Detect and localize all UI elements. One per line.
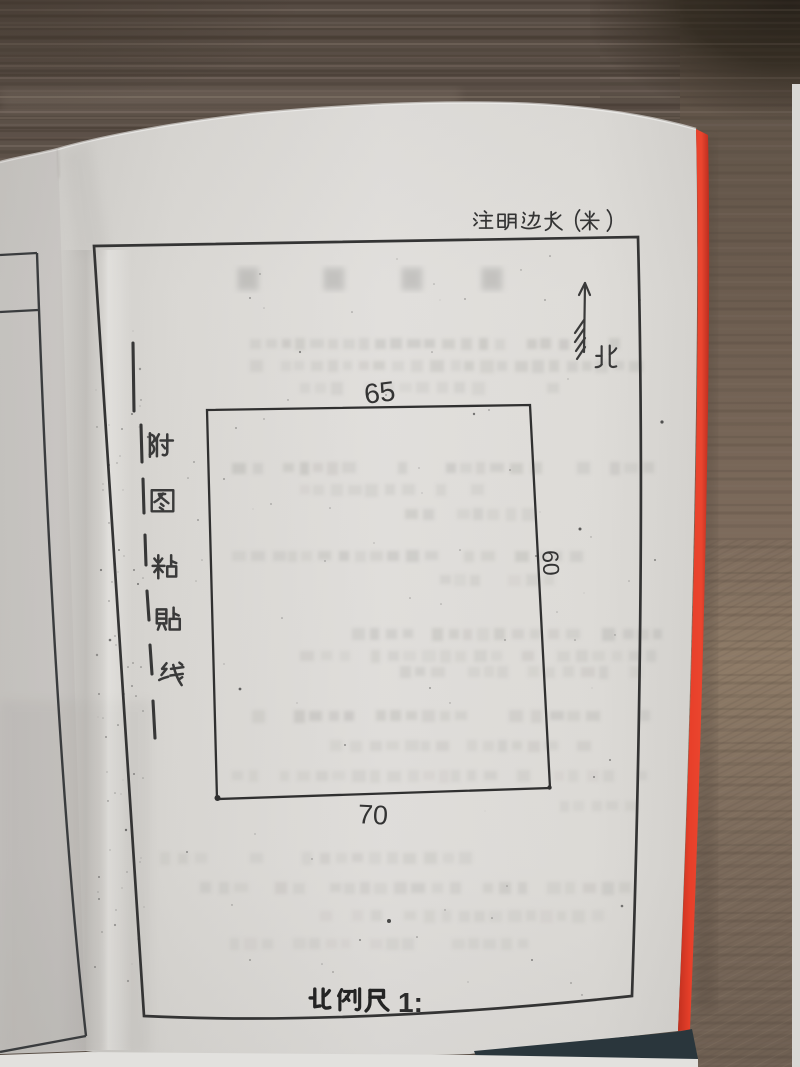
svg-text:1:: 1: xyxy=(398,987,423,1018)
svg-text:70: 70 xyxy=(357,799,389,831)
svg-text:65: 65 xyxy=(362,375,397,410)
svg-text:60: 60 xyxy=(537,549,564,576)
